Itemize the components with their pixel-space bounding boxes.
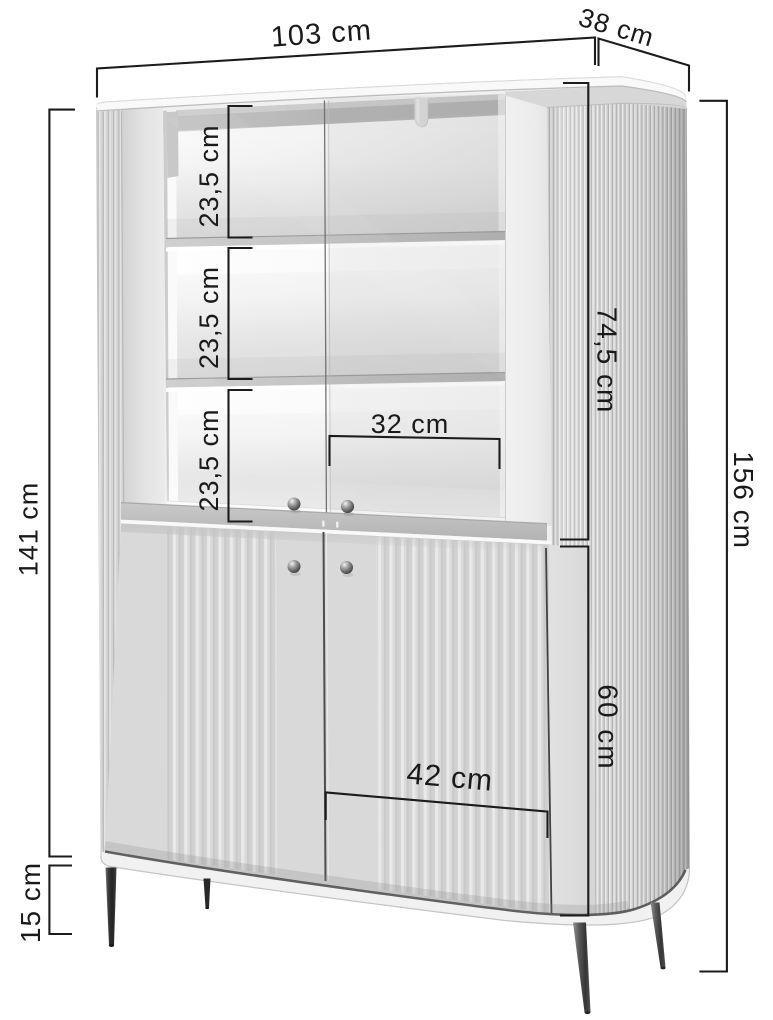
svg-text:23,5 cm: 23,5 cm <box>194 408 224 511</box>
svg-text:74,5 cm: 74,5 cm <box>592 307 623 414</box>
svg-text:156 cm: 156 cm <box>728 451 759 549</box>
svg-text:15 cm: 15 cm <box>15 862 46 943</box>
svg-text:141 cm: 141 cm <box>14 482 44 577</box>
svg-text:103 cm: 103 cm <box>270 14 373 53</box>
svg-text:23,5 cm: 23,5 cm <box>194 266 224 369</box>
svg-text:38 cm: 38 cm <box>575 2 658 53</box>
svg-text:32 cm: 32 cm <box>371 409 450 439</box>
svg-text:60 cm: 60 cm <box>593 684 624 770</box>
svg-text:23,5 cm: 23,5 cm <box>194 124 224 227</box>
